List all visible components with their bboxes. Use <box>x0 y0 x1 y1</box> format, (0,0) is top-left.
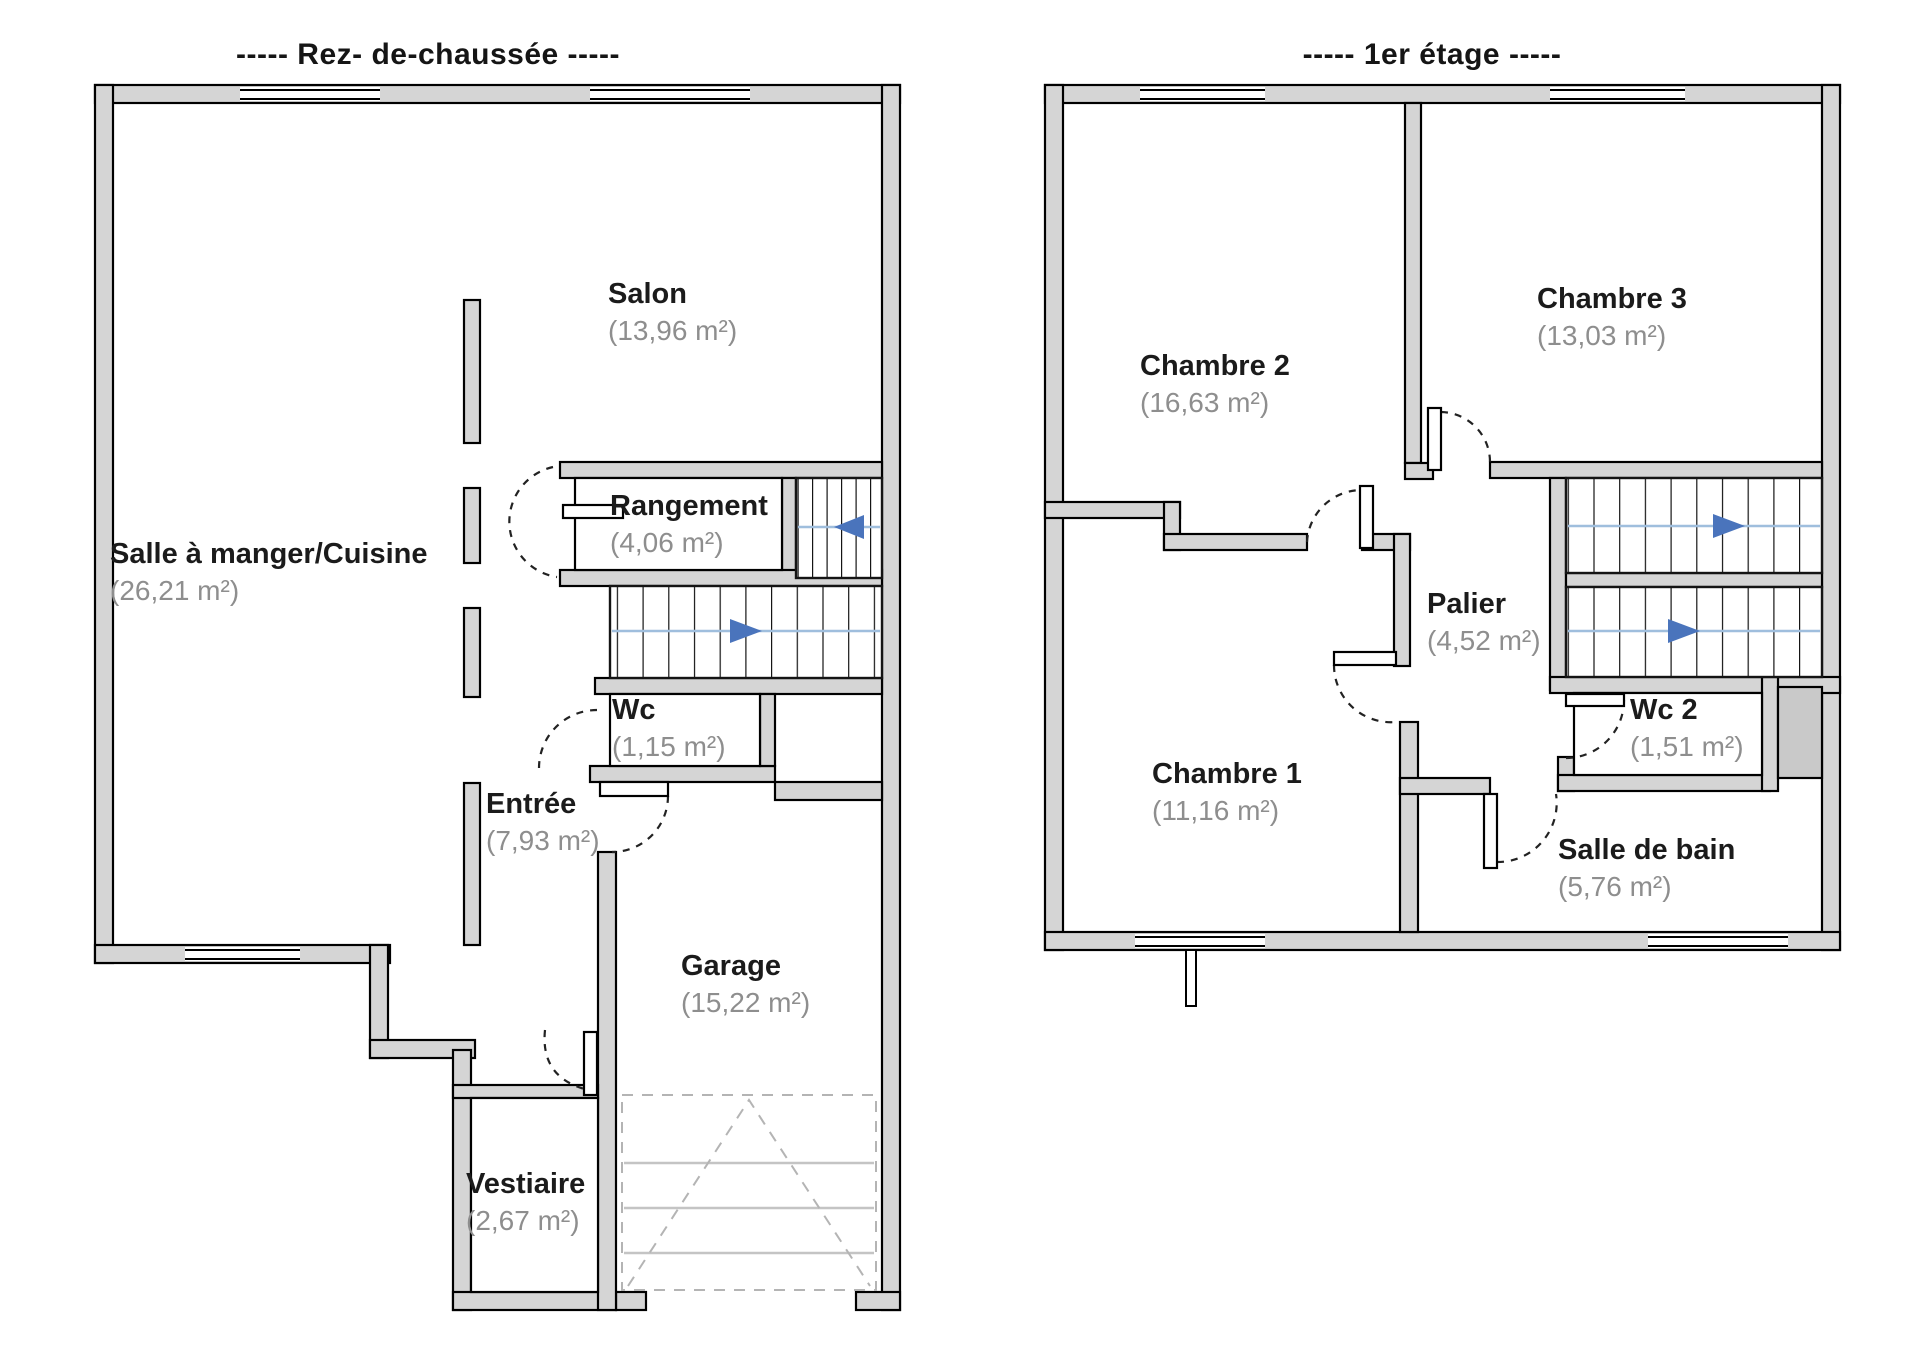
duct-shaft <box>1778 687 1822 778</box>
door-swing-chambre2 <box>1307 490 1362 542</box>
room-label-salle-de-bain: Salle de bain (5,76 m²) <box>1558 834 1735 903</box>
room-label-entree: Entrée (7,93 m²) <box>486 788 600 857</box>
room-label-wc2: Wc 2 (1,51 m²) <box>1630 694 1744 763</box>
room-area: (13,03 m²) <box>1537 320 1687 351</box>
door-leaf <box>1566 694 1624 706</box>
room-label-chambre3: Chambre 3 (13,03 m²) <box>1537 283 1687 352</box>
door-swing-chambre3 <box>1441 412 1490 462</box>
stair-upper-flight <box>796 478 882 578</box>
room-area: (16,63 m²) <box>1140 387 1290 418</box>
room-name: Chambre 1 <box>1152 758 1302 790</box>
room-area: (1,15 m²) <box>612 731 726 762</box>
door-swing-garage <box>612 796 668 852</box>
door-swing-entrance <box>545 1030 588 1090</box>
stair-upper-flight <box>1566 478 1822 573</box>
door-swing-storage <box>509 467 557 577</box>
room-area: (26,21 m²) <box>110 575 428 606</box>
room-label-wc: Wc (1,15 m²) <box>612 694 726 763</box>
room-name: Chambre 3 <box>1537 283 1687 315</box>
room-name: Salle à manger/Cuisine <box>110 538 428 570</box>
room-name: Chambre 2 <box>1140 350 1290 382</box>
room-name: Palier <box>1427 588 1541 620</box>
room-label-garage: Garage (15,22 m²) <box>681 950 810 1019</box>
room-area: (13,96 m²) <box>608 315 737 346</box>
room-area: (11,16 m²) <box>1152 795 1302 826</box>
garage-door-symbol <box>622 1095 876 1290</box>
room-label-vestiaire: Vestiaire (2,67 m²) <box>466 1168 585 1237</box>
room-label-salon: Salon (13,96 m²) <box>608 278 737 347</box>
room-label-chambre2: Chambre 2 (16,63 m²) <box>1140 350 1290 419</box>
door-leaf <box>1360 486 1373 548</box>
door-leaf <box>600 782 668 796</box>
door-leaf <box>1484 794 1497 868</box>
room-name: Rangement <box>610 490 768 522</box>
ground-floor-title: ----- Rez- de-chaussée ----- <box>236 38 620 72</box>
room-name: Vestiaire <box>466 1168 585 1200</box>
room-area: (15,22 m²) <box>681 987 810 1018</box>
door-swing-bathroom <box>1497 794 1557 862</box>
stair-lower-flight <box>610 586 882 678</box>
first-floor-title: ----- 1er étage ----- <box>1303 38 1562 72</box>
room-label-salle-a-manger: Salle à manger/Cuisine (26,21 m²) <box>110 538 428 607</box>
room-area: (1,51 m²) <box>1630 731 1744 762</box>
door-leaf <box>1428 408 1441 470</box>
door-leaf <box>584 1032 597 1095</box>
door-swing-chambre1 <box>1334 665 1396 722</box>
door-leaf <box>1334 652 1396 665</box>
room-name: Garage <box>681 950 810 982</box>
room-name: Entrée <box>486 788 600 820</box>
room-label-palier: Palier (4,52 m²) <box>1427 588 1541 657</box>
floorplan-drawing <box>0 0 1920 1358</box>
room-name: Salle de bain <box>1558 834 1735 866</box>
room-name: Wc <box>612 694 726 726</box>
room-area: (7,93 m²) <box>486 825 600 856</box>
vent-pipe <box>1186 950 1196 1006</box>
room-name: Wc 2 <box>1630 694 1744 726</box>
ground-floor-plan <box>95 85 900 1310</box>
door-swing-wc <box>539 710 597 768</box>
stair-lower-flight <box>1566 587 1822 677</box>
room-name: Salon <box>608 278 737 310</box>
room-area: (5,76 m²) <box>1558 871 1735 902</box>
room-area: (2,67 m²) <box>466 1205 585 1236</box>
floorplan-canvas: ----- Rez- de-chaussée ----- ----- 1er é… <box>0 0 1920 1358</box>
room-area: (4,06 m²) <box>610 527 768 558</box>
room-area: (4,52 m²) <box>1427 625 1541 656</box>
room-label-chambre1: Chambre 1 (11,16 m²) <box>1152 758 1302 827</box>
room-label-rangement: Rangement (4,06 m²) <box>610 490 768 559</box>
